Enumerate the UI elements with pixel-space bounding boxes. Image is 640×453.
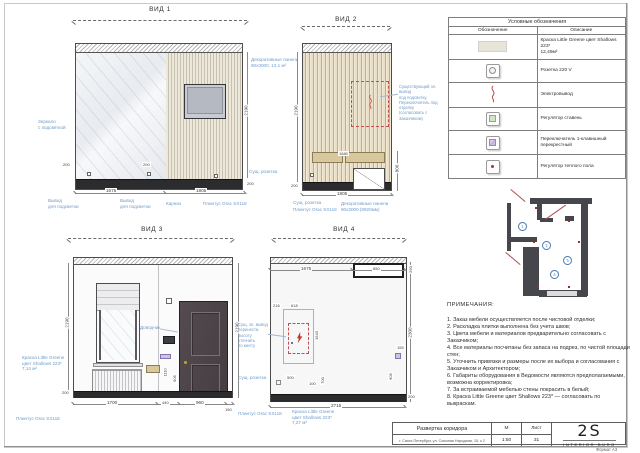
- view4-dim-b6: 700: [320, 376, 325, 385]
- plan-view-marker-1: 1: [517, 221, 528, 232]
- view1-socket-icon: [214, 174, 218, 178]
- view3-dim-base: 200: [61, 390, 70, 395]
- sheet-label: Лист: [531, 426, 541, 431]
- paint-swatch-icon: [478, 41, 507, 52]
- view4-bracket: [273, 238, 405, 239]
- view3-door-handle: [184, 361, 187, 364]
- view4-baseboard: [271, 394, 406, 402]
- view4-dim-b2: 618: [290, 303, 299, 308]
- logo-cell: 2S INTERIOR BURO: [551, 423, 627, 446]
- view2-cabinet: [353, 168, 385, 190]
- view4-dimline-top: [270, 270, 405, 271]
- view2-bracket: [302, 26, 390, 27]
- view3-label-paint: Краска Little Greene цвет Shallows 223* …: [22, 355, 66, 372]
- view1-label-light-out-2: Вывод для подсветки: [120, 198, 154, 209]
- view1-socket-icon: [87, 172, 91, 176]
- legend-desc-socket: Розетка 220 V: [537, 60, 626, 83]
- legend-desc-floor-heating: Регулятор теплого пола: [537, 155, 626, 179]
- view4-label-plinth: Плинтус Orac SX118: [238, 411, 284, 417]
- view1-label-panels: Декоративные панели 90х3000, 12,1 м²: [251, 57, 301, 68]
- view1-label-cornice: Карниз: [166, 201, 181, 207]
- view2-title: ВИД 2: [326, 16, 366, 23]
- note-item: 8. Краска Little Greene цвет Shallows 22…: [447, 394, 630, 408]
- legend-col-symbol: Обозначение: [449, 27, 538, 35]
- view2-console-shelf: [345, 152, 385, 163]
- plan-view-marker-4: 4: [549, 269, 560, 280]
- view1-baseboard: [76, 179, 242, 189]
- view3-label-closer: Доводчик: [140, 325, 160, 331]
- legend-title: Условные обозначения: [449, 18, 626, 27]
- view1-mirror: [76, 53, 166, 179]
- legend-table: Условные обозначения Обозначение Описани…: [448, 17, 626, 179]
- view4-dashed-outlet: [276, 380, 281, 385]
- legend-desc-cross-switch: Переключатель 1-клавишный перекрестный: [537, 131, 626, 155]
- view3-dim-w3: 960: [195, 400, 205, 405]
- view3-dimline-bottom: [73, 404, 233, 405]
- plan-wall: [581, 203, 588, 296]
- view3-cornice: [74, 258, 232, 265]
- view4-label-paint: Краска Little Greene цвет Shallows 223* …: [292, 409, 338, 426]
- view3-title: ВИД 3: [130, 226, 174, 233]
- view4-dim-b7: 155: [396, 345, 405, 350]
- view1-dim-socket1: 200: [62, 162, 71, 167]
- view2-label-panels: Декоративные панели 90х3000 (8920мм): [341, 201, 389, 212]
- view1-dim-w2: 1805: [195, 188, 207, 193]
- notes-title: ПРИМЕЧАНИЯ:: [447, 302, 494, 308]
- plan-door-swing: [510, 189, 525, 202]
- view1-cornice: [76, 44, 242, 53]
- project-address: г. Санкт-Петербург, ул. Союзная Народная…: [399, 439, 485, 443]
- plan-door-swing: [505, 252, 520, 265]
- lightning-icon: [296, 332, 303, 344]
- note-item: 7. За встраиваемой мебелью стены покраси…: [447, 387, 630, 394]
- view3-window: [96, 283, 140, 363]
- view4-dim-r1: 290: [408, 265, 413, 274]
- floor-heating-icon: [486, 160, 500, 174]
- note-item: 4. Все материалы посчитаны без запаса на…: [447, 345, 630, 359]
- view1-wall: [75, 43, 243, 190]
- view3-switch: [160, 354, 171, 359]
- view3-window-sill: [93, 363, 143, 367]
- scale-value: 1:50: [502, 438, 511, 443]
- view1-socket-icon: [147, 172, 151, 176]
- view3-shelf: [146, 365, 160, 373]
- view1-title: ВИД 1: [130, 6, 190, 13]
- view3-dim-switch-h: 905: [172, 374, 177, 383]
- address-cell: г. Санкт-Петербург, ул. Союзная Народная…: [393, 434, 491, 446]
- note-item: 6. Габариты оборудования в Ведомости явл…: [447, 373, 630, 387]
- view4-elec-point: [291, 342, 293, 344]
- drawing-title-cell: Развертка коридора: [393, 423, 491, 434]
- notes-list: 1. Заказ мебели осуществляется после чис…: [447, 317, 630, 408]
- view2-label-socket: Сущ. розетка: [293, 200, 321, 206]
- view1-label-plinth: Плинтус Orac SX118: [203, 201, 247, 207]
- view4-dim-r2: 2300: [408, 326, 413, 338]
- view1-dim-socket2: 200: [142, 162, 151, 167]
- legend-desc-electric: Электровывод: [537, 83, 626, 108]
- view3-dim-thermostat-h: 1110: [163, 367, 168, 377]
- view3-junction-box: [166, 298, 172, 304]
- note-item: 5. Уточнить привязки и размеры после их …: [447, 359, 630, 373]
- view2-label-plinth: Плинтус Orac SX118: [293, 207, 337, 213]
- electric-output-icon: [489, 85, 497, 103]
- view3-bracket: [68, 238, 233, 239]
- note-item: 1. Заказ мебели осуществляется после чис…: [447, 317, 630, 324]
- plan-view-marker-2: 2: [541, 240, 552, 251]
- plan-wall: [507, 203, 511, 251]
- view3-dim-w4: 150: [224, 407, 233, 412]
- sheet-number: 31: [534, 438, 539, 443]
- plan-view-marker-3: 3: [562, 255, 573, 266]
- view4-dim-b8: 905: [388, 372, 393, 381]
- view3-label-socket: Сущ. розетка: [238, 375, 274, 381]
- view3-radiator: [92, 369, 142, 393]
- view3-baseboard: [74, 391, 232, 398]
- legend-desc-dimmer: Регулятор ставень: [537, 108, 626, 131]
- view3-dim-w2: 440: [161, 400, 170, 405]
- view2-dim-cabinet: 800: [394, 164, 399, 174]
- view2-socket-icon: [310, 173, 314, 177]
- view2-dim-base: 200: [290, 183, 299, 188]
- dimmer-icon: [486, 112, 500, 126]
- view1-label-light-out-1: Вывод для подсветки: [48, 198, 82, 209]
- view3-thermostat: [163, 336, 175, 344]
- view3-label-plinth: Плинтус Orac SX118: [16, 416, 62, 422]
- studio-logo: 2S: [577, 423, 601, 439]
- view4-label-note: Сущ. эл. вывод перенести, высоту уточнит…: [238, 322, 268, 348]
- plan-opening: [547, 291, 577, 296]
- view1-tv: [184, 84, 226, 119]
- view3-window-glass: [99, 310, 137, 360]
- plan-door-swing: [545, 205, 566, 220]
- plan-wall: [523, 247, 539, 296]
- view2-dim-width: 1805: [336, 191, 348, 196]
- view1-label-mirror: Зеркало с подсветкой: [38, 119, 72, 130]
- view4-dim-b1: 216: [272, 303, 281, 308]
- view1-dimline-width: [75, 193, 245, 194]
- title-block: Развертка коридора г. Санкт-Петербург, у…: [392, 422, 626, 445]
- legend-col-desc: Описание: [537, 27, 626, 35]
- view4-title: ВИД 4: [322, 226, 366, 233]
- view4-dim-width: 2715: [330, 403, 342, 408]
- drawing-title: Развертка коридора: [417, 426, 468, 432]
- view4-dim-r3: 200: [407, 394, 416, 399]
- view1-dim-base: 200: [246, 181, 255, 186]
- view3-dim-height-left: 2190: [65, 316, 70, 328]
- electric-output-icon: [367, 94, 374, 110]
- cross-switch-icon: [486, 136, 500, 150]
- note-item: 2. Раскладка плитки выполнена без учета …: [447, 324, 630, 331]
- socket-icon: [486, 64, 500, 78]
- view4-switch: [395, 353, 401, 359]
- view1-label-socket: Сущ. розетка: [249, 169, 289, 175]
- view3-door: [179, 301, 228, 398]
- scale-label: М: [505, 426, 509, 431]
- view4-wall: [270, 257, 407, 402]
- view4-dim-t1: 1675: [300, 266, 312, 271]
- view4-dim-b5: 100: [308, 381, 317, 386]
- view3-roman-shade: [97, 284, 139, 311]
- view1-dim-w1: 1675: [105, 188, 117, 193]
- view1-bracket: [73, 20, 247, 21]
- view4-dim-t2: 650: [372, 266, 381, 271]
- view2-cornice: [303, 44, 391, 53]
- legend-desc-paint: Краска Little Greene цвет Shallows 223* …: [537, 35, 626, 60]
- view1-dim-height: 2190: [244, 104, 249, 116]
- format-label: Формат А3: [596, 447, 617, 452]
- view2-dimline-height: [297, 52, 298, 182]
- drawing-sheet: ВИД 1 2190 200 200 200 1675 1805 Зеркало…: [0, 0, 640, 453]
- note-item: 3. Цвета мебели и материалов предварител…: [447, 331, 630, 345]
- studio-logo-subtitle: INTERIOR BURO: [563, 440, 616, 447]
- view4-dim-b3: 1543: [314, 330, 319, 341]
- view2-dim-height: 2190: [294, 104, 299, 116]
- view2-wall: [302, 43, 392, 191]
- view2-dim-shelf: 1680: [338, 151, 349, 156]
- floor-plan: 1 2 3 4: [505, 185, 593, 303]
- view4-dim-b4: 500: [286, 375, 295, 380]
- view2-label-note: Существующий эл. вывод под подсветку. Пе…: [399, 84, 445, 121]
- view3-dim-w1: 1700: [106, 400, 118, 405]
